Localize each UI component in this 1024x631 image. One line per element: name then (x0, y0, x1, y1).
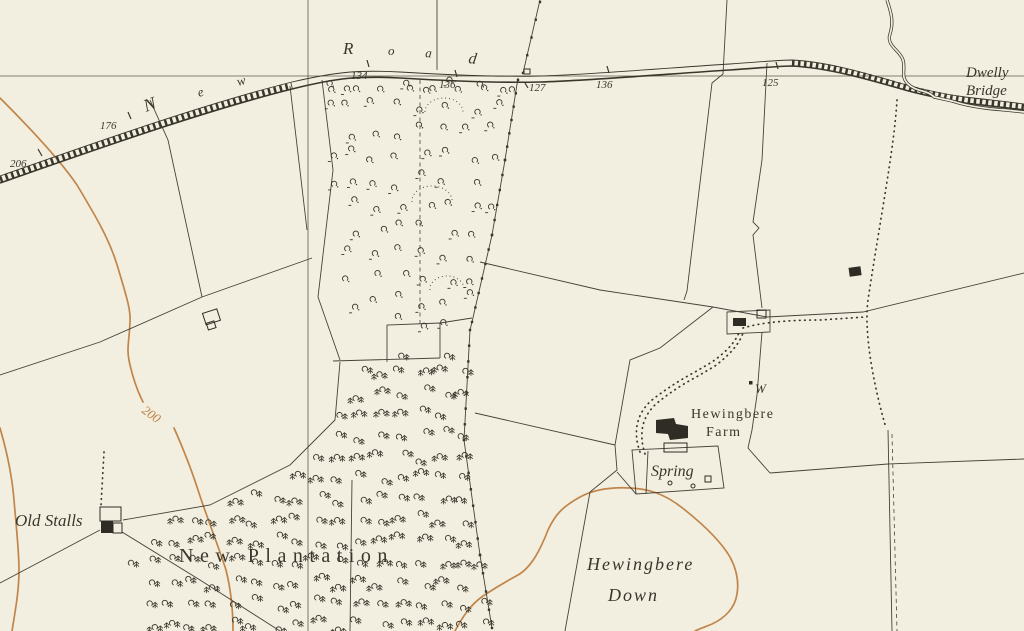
tree-shadow-dot (397, 190, 398, 191)
tree-shadow-dot (334, 105, 335, 106)
tree-shadow-dot (461, 91, 462, 92)
fence-dot (506, 145, 508, 147)
well-marker (749, 381, 753, 385)
field-barn (849, 266, 862, 277)
tree-shadow-dot (350, 251, 351, 252)
fence-dot (491, 627, 493, 629)
tree-shadow-dot (347, 105, 348, 106)
fence-dot (491, 234, 493, 236)
tree-shadow-dot (468, 129, 469, 130)
fence-dot (482, 572, 484, 574)
tree-shadow-dot (400, 250, 401, 251)
spot-height-136-east: 136 (596, 79, 613, 91)
tree-shadow-dot (444, 184, 445, 185)
tree-shadow-dot (422, 112, 423, 113)
tree-shadow-dot (337, 186, 338, 187)
tree-shadow-dot (473, 295, 474, 296)
tree-shadow-dot (422, 225, 423, 226)
road-label-letter-o: o (388, 43, 395, 58)
tree-shadow-dot (435, 207, 436, 208)
hewingbere-farm-label-line1: Hewingbere (691, 407, 774, 422)
tree-shadow-dot (422, 127, 423, 128)
fence-dot (535, 19, 537, 21)
tree-shadow-dot (451, 204, 452, 205)
tree-shadow-dot (379, 136, 380, 137)
fence-dot (517, 79, 519, 81)
tree-shadow-dot (401, 318, 402, 319)
tree-shadow-dot (429, 92, 430, 93)
tree-shadow-dot (446, 129, 447, 130)
tree-shadow-dot (383, 91, 384, 92)
well-label: W (755, 381, 767, 396)
map-paper-background (0, 0, 1024, 631)
fence-dot (465, 407, 467, 409)
tree-shadow-dot (472, 284, 473, 285)
tree-shadow-dot (498, 159, 499, 160)
spot-height-206: 206 (10, 158, 27, 170)
map-canvas: N e w R o a d 206 176 134 136 127 136 12… (0, 0, 1024, 631)
tree-shadow-dot (494, 209, 495, 210)
fence-dot (515, 92, 517, 94)
tree-shadow-dot (359, 236, 360, 237)
old-stalls-label: Old Stalls (15, 511, 83, 530)
new-plantation-label: New Plantation (179, 545, 394, 567)
fence-dot (474, 306, 476, 308)
spot-height-176: 176 (100, 120, 117, 132)
tree-shadow-dot (406, 209, 407, 210)
fence-dot (501, 174, 503, 176)
tree-shadow-dot (402, 225, 403, 226)
tree-shadow-dot (350, 91, 351, 92)
tree-shadow-dot (372, 162, 373, 163)
tree-shadow-dot (396, 158, 397, 159)
tree-shadow-dot (378, 256, 379, 257)
tree-shadow-dot (359, 91, 360, 92)
tree-shadow-dot (400, 104, 401, 105)
tree-shadow-dot (373, 103, 374, 104)
spot-height-127: 127 (529, 82, 546, 94)
tree-shadow-dot (379, 211, 380, 212)
tree-shadow-dot (424, 253, 425, 254)
fence-dot (469, 329, 471, 331)
tree-shadow-dot (348, 281, 349, 282)
tree-shadow-dot (487, 90, 488, 91)
fence-dot (477, 292, 479, 294)
spring-label: Spring (651, 463, 694, 480)
tree-shadow-dot (354, 151, 355, 152)
tree-shadow-dot (478, 162, 479, 163)
fence-dot (485, 590, 487, 592)
fence-dot (472, 505, 474, 507)
tree-shadow-dot (424, 309, 425, 310)
dwelly-bridge-label-line2: Bridge (966, 83, 1007, 99)
fence-dot (470, 488, 472, 490)
tree-shadow-dot (445, 260, 446, 261)
tree-shadow-dot (493, 127, 494, 128)
tree-shadow-dot (480, 184, 481, 185)
fence-dot (496, 204, 498, 206)
fence-dot (477, 537, 479, 539)
spot-height-136-west: 136 (439, 79, 456, 91)
tree-shadow-dot (356, 184, 357, 185)
tree-shadow-dot (435, 91, 436, 92)
hewingbere-down-label-line1: Hewingbere (586, 554, 694, 574)
fence-dot (504, 159, 506, 161)
fence-dot (471, 321, 473, 323)
tree-shadow-dot (426, 281, 427, 282)
tree-shadow-dot (502, 105, 503, 106)
tree-shadow-dot (358, 309, 359, 310)
tree-shadow-dot (448, 152, 449, 153)
fence-dot (468, 345, 470, 347)
hewingbere-farm-label-line2: Farm (706, 425, 742, 440)
tree-shadow-dot (424, 175, 425, 176)
fence-dot (493, 219, 495, 221)
spot-height-125: 125 (762, 77, 779, 89)
fence-dot (474, 521, 476, 523)
fence-dot (526, 54, 528, 56)
tree-shadow-dot (375, 186, 376, 187)
fence-dot (481, 277, 483, 279)
tree-shadow-dot (357, 202, 358, 203)
old-stalls-building-filled (101, 521, 113, 533)
tree-shadow-dot (483, 86, 484, 87)
fence-dot (508, 132, 510, 134)
spot-height-134: 134 (351, 70, 368, 82)
fence-dot (484, 263, 486, 265)
fence-dot (488, 609, 490, 611)
tree-shadow-dot (448, 107, 449, 108)
fence-dot (539, 1, 541, 3)
fence-dot (499, 189, 501, 191)
barn-building (733, 318, 746, 326)
fence-dot (530, 36, 532, 38)
tree-shadow-dot (445, 304, 446, 305)
fence-dot (487, 248, 489, 250)
fence-dot (522, 72, 524, 74)
tree-shadow-dot (409, 276, 410, 277)
tree-shadow-dot (474, 236, 475, 237)
tree-shadow-dot (334, 92, 335, 93)
tree-shadow-dot (427, 328, 428, 329)
road-label-letter-R: R (342, 39, 354, 58)
tree-shadow-dot (446, 325, 447, 326)
fence-dot (466, 376, 468, 378)
hewingbere-down-label-line2: Down (607, 585, 659, 605)
tree-shadow-dot (387, 231, 388, 232)
tree-shadow-dot (430, 155, 431, 156)
tree-shadow-dot (480, 114, 481, 115)
tree-shadow-dot (458, 235, 459, 236)
fence-dot (467, 472, 469, 474)
fence-dot (465, 392, 467, 394)
tree-shadow-dot (337, 158, 338, 159)
tree-shadow-dot (376, 301, 377, 302)
tree-shadow-dot (380, 275, 381, 276)
fence-dot (512, 105, 514, 107)
fence-dot (479, 554, 481, 556)
tree-shadow-dot (456, 285, 457, 286)
tree-shadow-dot (355, 139, 356, 140)
fence-dot (510, 119, 512, 121)
fence-dot (463, 439, 465, 441)
tree-shadow-dot (506, 92, 507, 93)
tree-shadow-dot (400, 139, 401, 140)
fence-dot (465, 455, 467, 457)
tree-shadow-dot (472, 261, 473, 262)
tree-shadow-dot (481, 208, 482, 209)
fence-dot (464, 423, 466, 425)
tree-shadow-dot (401, 296, 402, 297)
tree-shadow-dot (413, 90, 414, 91)
fence-dot (467, 360, 469, 362)
dwelly-bridge-label-line1: Dwelly (965, 65, 1009, 81)
